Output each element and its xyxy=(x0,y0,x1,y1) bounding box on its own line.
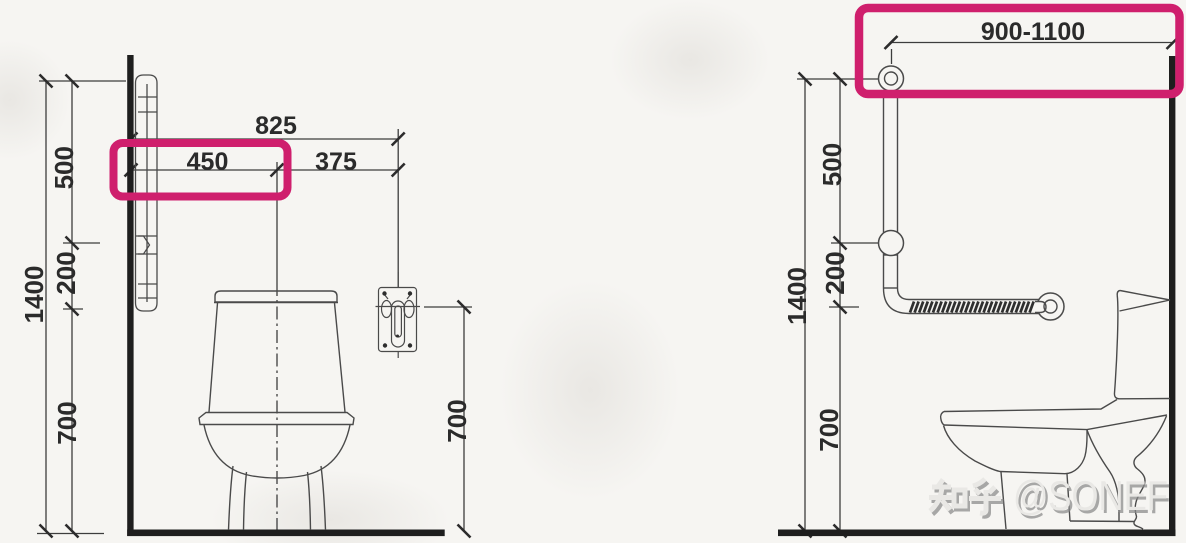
svg-text:200: 200 xyxy=(820,251,850,294)
svg-text:700: 700 xyxy=(442,399,472,442)
svg-text:200: 200 xyxy=(51,251,81,294)
svg-text:500: 500 xyxy=(49,146,79,189)
svg-text:900-1100: 900-1100 xyxy=(981,18,1085,46)
svg-text:825: 825 xyxy=(255,112,297,140)
svg-text:500: 500 xyxy=(817,143,847,186)
svg-text:700: 700 xyxy=(52,401,82,444)
svg-text:1400: 1400 xyxy=(782,267,812,325)
svg-text:1400: 1400 xyxy=(19,266,49,324)
svg-text:@SONEF: @SONEF xyxy=(1013,472,1168,519)
svg-text:375: 375 xyxy=(315,148,357,176)
svg-text:450: 450 xyxy=(187,148,229,176)
svg-text:700: 700 xyxy=(814,408,844,451)
